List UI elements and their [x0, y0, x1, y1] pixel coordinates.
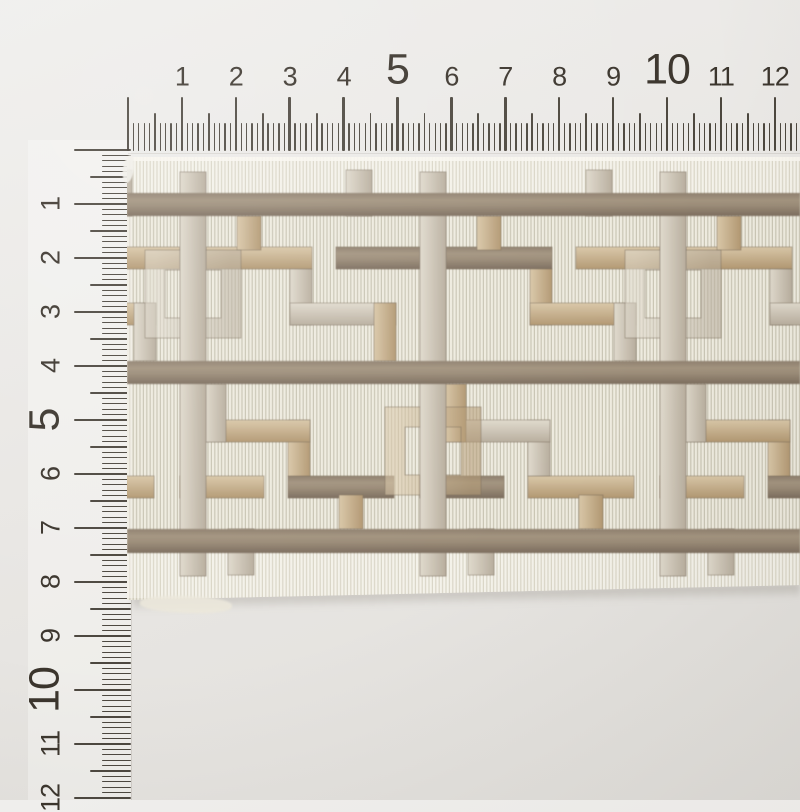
cm-tick [74, 149, 131, 152]
mm-tick [219, 123, 220, 151]
ruler-number: 9 [36, 629, 67, 643]
mm-tick [102, 220, 131, 221]
mm-tick [537, 123, 538, 151]
half-cm-tick [90, 230, 131, 232]
ruler-number: 5 [386, 46, 409, 95]
half-cm-tick [208, 113, 210, 151]
mm-tick [656, 123, 657, 151]
mm-tick [102, 274, 131, 275]
mm-tick [726, 123, 727, 151]
mm-tick [102, 263, 131, 264]
mm-tick [386, 123, 387, 151]
half-cm-tick [424, 113, 426, 151]
cm-tick [774, 97, 777, 151]
embroidered-trim-tape [127, 157, 800, 600]
mm-tick [102, 328, 131, 329]
mm-tick [102, 749, 131, 750]
half-cm-tick [477, 113, 479, 151]
mm-tick [553, 123, 554, 151]
cm-tick [235, 97, 238, 151]
mm-tick [102, 209, 131, 210]
mm-tick [284, 123, 285, 151]
mm-tick [102, 463, 131, 464]
cm-tick [450, 97, 453, 151]
mm-tick [699, 123, 700, 151]
mm-tick [769, 123, 770, 151]
cm-tick [74, 365, 131, 368]
photo-stage: 123456789101112 123456789101112 [0, 0, 800, 800]
mm-tick [688, 123, 689, 151]
mm-tick [521, 123, 522, 151]
mm-tick [102, 587, 131, 588]
mm-tick [365, 123, 366, 151]
mm-tick [102, 652, 131, 653]
cm-tick [74, 689, 131, 692]
mm-tick [102, 382, 131, 383]
mm-tick [300, 123, 301, 151]
mm-tick [176, 123, 177, 151]
half-cm-tick [693, 113, 695, 151]
mm-tick [575, 123, 576, 151]
mm-tick [354, 123, 355, 151]
half-cm-tick [90, 392, 131, 394]
mm-tick [736, 123, 737, 151]
mm-tick [102, 614, 131, 615]
mm-tick [677, 123, 678, 151]
mm-tick [462, 123, 463, 151]
mm-tick [445, 123, 446, 151]
mm-tick [391, 123, 392, 151]
mm-tick [197, 123, 198, 151]
mm-tick [102, 571, 131, 572]
cm-tick [288, 97, 291, 151]
mm-tick [102, 706, 131, 707]
mm-tick [102, 247, 131, 248]
half-cm-tick [90, 770, 131, 772]
ruler-number: 11 [708, 62, 734, 93]
mm-tick [102, 193, 131, 194]
mm-tick [102, 371, 131, 372]
mm-tick [375, 123, 376, 151]
mm-tick [102, 317, 131, 318]
mm-tick [187, 123, 188, 151]
mm-tick [758, 123, 759, 151]
mm-tick [790, 123, 791, 151]
mm-tick [753, 123, 754, 151]
mm-tick [683, 123, 684, 151]
mm-tick [602, 123, 603, 151]
mm-tick [596, 123, 597, 151]
half-cm-tick [90, 662, 131, 664]
mm-tick [526, 123, 527, 151]
mm-tick [591, 123, 592, 151]
mm-tick [548, 123, 549, 151]
cm-tick [74, 257, 131, 260]
mm-tick [160, 123, 161, 151]
half-cm-tick [747, 113, 749, 151]
mm-tick [102, 236, 131, 237]
mm-tick [327, 123, 328, 151]
mm-tick [192, 123, 193, 151]
mm-tick [408, 123, 409, 151]
cm-tick [720, 97, 723, 151]
half-cm-tick [262, 113, 264, 151]
ruler-number: 6 [36, 467, 67, 481]
half-cm-tick [90, 716, 131, 718]
ruler-number: 4 [337, 62, 351, 93]
mm-tick [102, 452, 131, 453]
half-cm-tick [639, 113, 641, 151]
mm-tick [623, 123, 624, 151]
mm-tick [102, 533, 131, 534]
mm-tick [731, 123, 732, 151]
mm-tick [138, 123, 139, 151]
ruler-number: 4 [36, 359, 67, 373]
mm-tick [402, 123, 403, 151]
mm-tick [102, 776, 131, 777]
mm-tick [763, 123, 764, 151]
ruler-number: 10 [644, 46, 690, 95]
mm-tick [102, 787, 131, 788]
mm-tick [311, 123, 312, 151]
ruler-number: 1 [36, 197, 67, 211]
mm-tick [359, 123, 360, 151]
mm-tick [102, 398, 131, 399]
mm-tick [661, 123, 662, 151]
mm-tick [413, 123, 414, 151]
ruler-number: 5 [21, 409, 70, 432]
half-cm-tick [90, 554, 131, 556]
mm-tick [418, 123, 419, 151]
left-ruler-edge [131, 600, 132, 800]
ruler-number: 12 [761, 62, 789, 93]
ruler-number: 10 [21, 667, 70, 713]
mm-tick [634, 123, 635, 151]
mm-tick [102, 695, 131, 696]
cm-tick [74, 581, 131, 584]
mm-tick [170, 123, 171, 151]
mm-tick [650, 123, 651, 151]
cm-tick [74, 473, 131, 476]
mm-tick [102, 479, 131, 480]
half-cm-tick [90, 608, 131, 610]
mm-tick [278, 123, 279, 151]
mm-tick [102, 679, 131, 680]
cm-tick [558, 97, 561, 151]
mm-tick [569, 123, 570, 151]
mm-tick [102, 490, 131, 491]
top-ruler-edge [128, 153, 800, 154]
mm-tick [472, 123, 473, 151]
cm-tick [74, 743, 131, 746]
mm-tick [257, 123, 258, 151]
mm-tick [742, 123, 743, 151]
cm-tick [74, 635, 131, 638]
half-cm-tick [90, 500, 131, 502]
mm-tick [780, 123, 781, 151]
mm-tick [102, 506, 131, 507]
mm-tick [133, 123, 134, 151]
cm-tick [74, 203, 131, 206]
mm-tick [102, 355, 131, 356]
mm-tick [203, 123, 204, 151]
half-cm-tick [531, 113, 533, 151]
mm-tick [102, 722, 131, 723]
mm-tick [494, 123, 495, 151]
mm-tick [102, 760, 131, 761]
cm-tick [666, 97, 669, 151]
half-cm-tick [90, 446, 131, 448]
mm-tick [607, 123, 608, 151]
mm-tick [241, 123, 242, 151]
mm-tick [672, 123, 673, 151]
mm-tick [332, 123, 333, 151]
mm-tick [515, 123, 516, 151]
half-cm-tick [154, 113, 156, 151]
mm-tick [785, 123, 786, 151]
mm-tick [246, 123, 247, 151]
mm-tick [214, 123, 215, 151]
half-cm-tick [585, 113, 587, 151]
mm-tick [338, 123, 339, 151]
mm-tick [102, 641, 131, 642]
ruler-number: 2 [36, 251, 67, 265]
mm-tick [618, 123, 619, 151]
half-cm-tick [370, 113, 372, 151]
mm-tick [224, 123, 225, 151]
mm-tick [429, 123, 430, 151]
ruler-number: 11 [36, 731, 67, 757]
cm-tick [396, 97, 399, 151]
mm-tick [102, 301, 131, 302]
mm-tick [102, 409, 131, 410]
mm-tick [488, 123, 489, 151]
mm-tick [102, 425, 131, 426]
mm-tick [230, 123, 231, 151]
mm-tick [102, 517, 131, 518]
mm-tick [165, 123, 166, 151]
mm-tick [273, 123, 274, 151]
mm-tick [102, 668, 131, 669]
mm-tick [467, 123, 468, 151]
ruler-number: 7 [498, 62, 512, 93]
ruler-number: 3 [36, 305, 67, 319]
mm-tick [499, 123, 500, 151]
mm-tick [564, 123, 565, 151]
cm-tick [74, 797, 131, 800]
mm-tick [796, 123, 797, 151]
mm-tick [102, 598, 131, 599]
cm-tick [612, 97, 615, 151]
ruler-number: 3 [283, 62, 297, 93]
mm-tick [251, 123, 252, 151]
ruler-number: 7 [36, 521, 67, 535]
mm-tick [321, 123, 322, 151]
mm-tick [456, 123, 457, 151]
mm-tick [435, 123, 436, 151]
half-cm-tick [316, 113, 318, 151]
half-cm-tick [90, 284, 131, 286]
mm-tick [542, 123, 543, 151]
mm-tick [305, 123, 306, 151]
mm-tick [440, 123, 441, 151]
cm-tick [74, 419, 131, 422]
mm-tick [629, 123, 630, 151]
cm-tick [74, 311, 131, 314]
ruler-number: 1 [175, 62, 189, 93]
mm-tick [381, 123, 382, 151]
cm-tick [127, 97, 130, 151]
mm-tick [144, 123, 145, 151]
cm-tick [74, 527, 131, 530]
mm-tick [102, 625, 131, 626]
ruler-number: 9 [606, 62, 620, 93]
ruler-number: 2 [229, 62, 243, 93]
mm-tick [267, 123, 268, 151]
cm-tick [342, 97, 345, 151]
ruler-number: 8 [36, 575, 67, 589]
ruler-number: 12 [36, 784, 67, 812]
mm-tick [102, 560, 131, 561]
ruler-number: 8 [552, 62, 566, 93]
mm-tick [348, 123, 349, 151]
mm-tick [715, 123, 716, 151]
cm-tick [181, 97, 184, 151]
mm-tick [709, 123, 710, 151]
ruler-number: 6 [444, 62, 458, 93]
cm-tick [504, 97, 507, 151]
mm-tick [149, 123, 150, 151]
mm-tick [645, 123, 646, 151]
mm-tick [102, 733, 131, 734]
mm-tick [102, 344, 131, 345]
mm-tick [483, 123, 484, 151]
mm-tick [704, 123, 705, 151]
mm-tick [102, 544, 131, 545]
mm-tick [294, 123, 295, 151]
mm-tick [580, 123, 581, 151]
mm-tick [510, 123, 511, 151]
half-cm-tick [90, 338, 131, 340]
mm-tick [102, 436, 131, 437]
mm-tick [102, 290, 131, 291]
